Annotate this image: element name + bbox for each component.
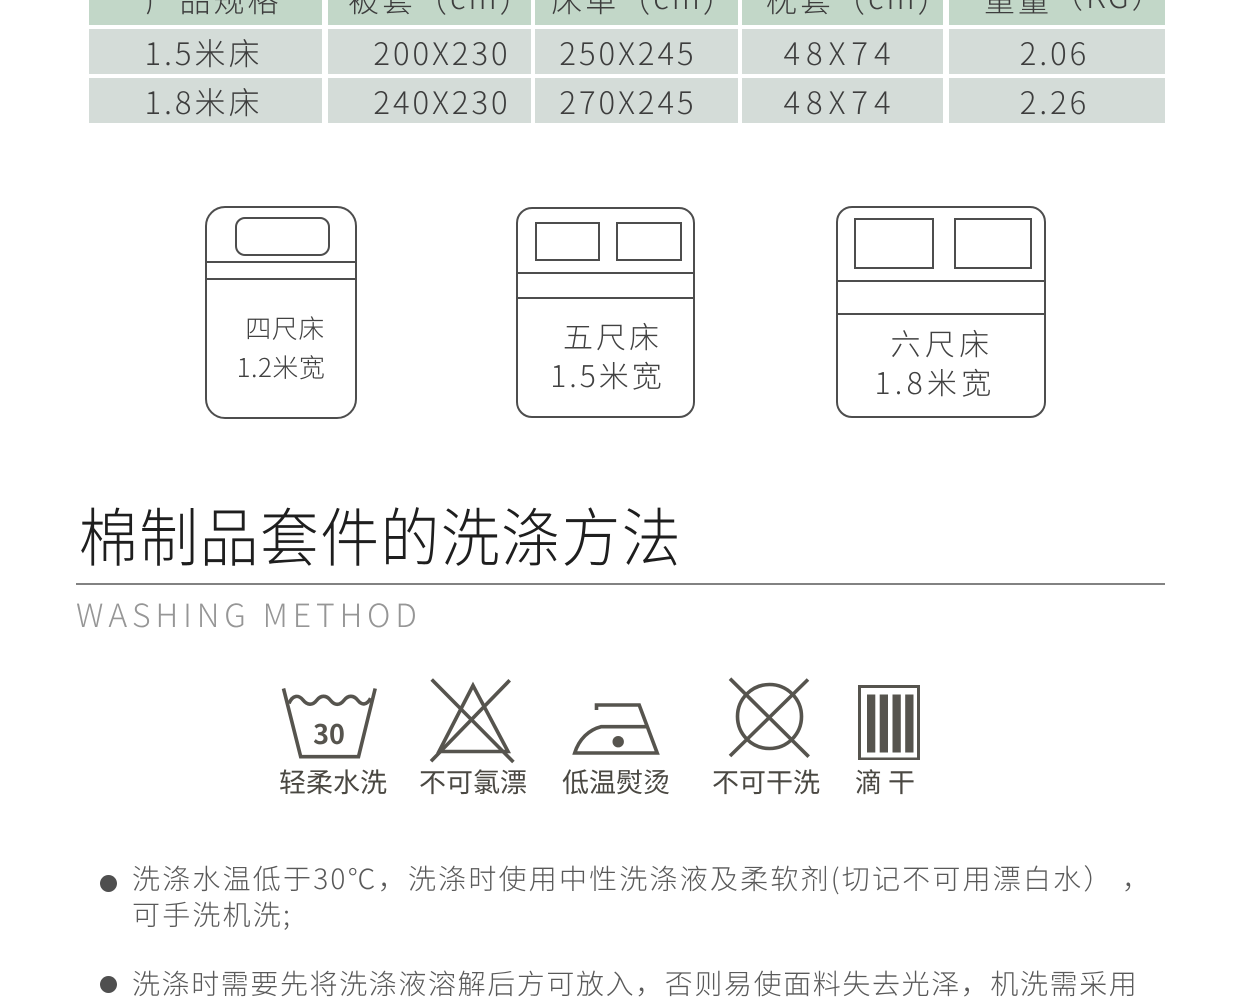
svg-text:30: 30: [313, 713, 345, 752]
